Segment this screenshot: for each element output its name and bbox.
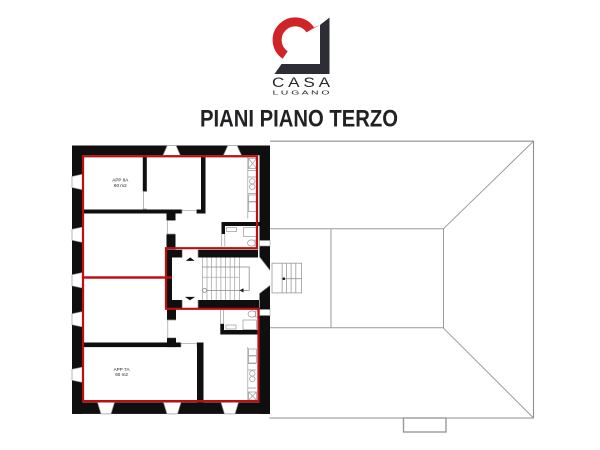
- svg-text:C A S A: C A S A: [272, 75, 330, 90]
- svg-text:L U G A N O: L U G A N O: [273, 91, 330, 97]
- svg-text:PIANI PIANO TERZO: PIANI PIANO TERZO: [200, 106, 398, 133]
- svg-text:60 m2: 60 m2: [115, 372, 128, 377]
- svg-text:APP 8A: APP 8A: [112, 178, 129, 183]
- svg-text:APP 7A: APP 7A: [114, 367, 131, 372]
- svg-text:60 m2: 60 m2: [114, 183, 127, 188]
